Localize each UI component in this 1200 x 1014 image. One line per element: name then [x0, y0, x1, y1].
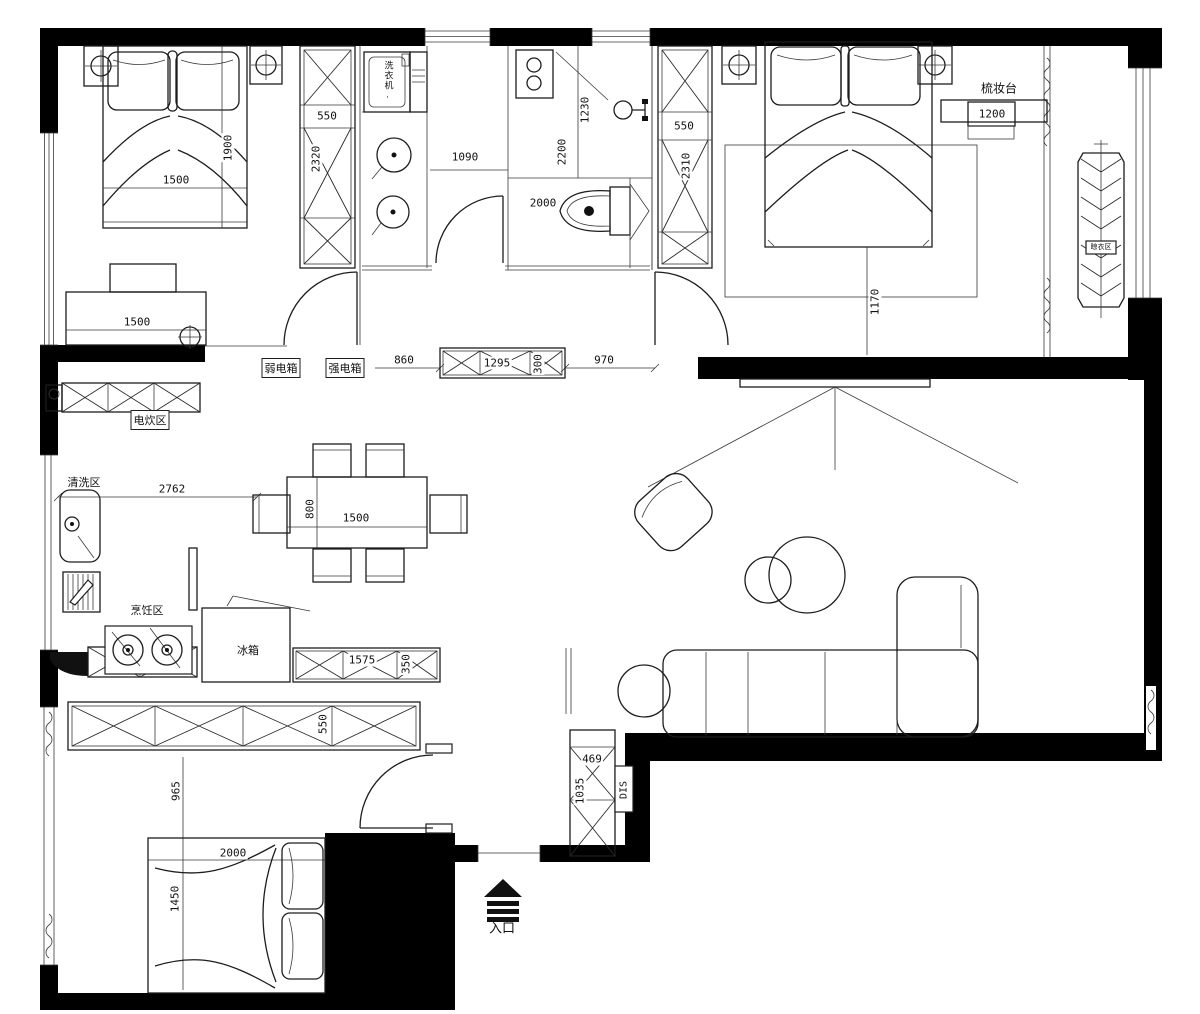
utility-basin: [372, 138, 411, 235]
dim-bl-clearance: 965: [170, 780, 183, 802]
gas-stove: [105, 626, 192, 674]
rug: [725, 145, 977, 297]
entrance-arrow-icon: [484, 879, 522, 922]
ceiling-light-icon: [250, 46, 282, 84]
label-strong-current-box: 强电箱: [326, 358, 365, 378]
dim-dresser-width: 1200: [978, 108, 1007, 121]
dim-table-width: 1500: [342, 512, 371, 525]
walls: [40, 28, 1162, 1010]
floor-plan-drawing: [0, 0, 1200, 1014]
dim-hall-b: 970: [593, 354, 615, 367]
washbasin: [516, 50, 608, 100]
label-dresser: 梳妆台: [981, 80, 1017, 97]
bedroom-master: [66, 46, 360, 349]
label-washing-machine: 洗衣机.: [383, 61, 392, 102]
bathroom: [508, 46, 652, 270]
ceiling-light-icon: [918, 46, 952, 84]
tv-cabinet: [740, 379, 930, 387]
living-room: [566, 379, 1018, 737]
windows: [40, 28, 1162, 965]
dim-wardrobe-bl-depth: 550: [317, 713, 330, 735]
dim-table-depth: 800: [304, 498, 317, 520]
dim-bed-bl-length: 2000: [219, 847, 248, 860]
dim-desk-width: 1500: [123, 316, 152, 329]
label-washing-area: 清洗区: [68, 474, 101, 490]
ceiling-light-icon: [722, 46, 756, 84]
sofa: [663, 577, 978, 737]
dim-wardrobe-tr-width: 550: [673, 120, 695, 133]
wardrobe: [68, 702, 420, 750]
label-dis: DIS: [619, 780, 630, 800]
entry: [484, 730, 633, 922]
label-electric-cooking-area: 电炊区: [131, 410, 170, 430]
dim-wardrobe-tl-height: 2320: [310, 145, 323, 174]
hallway: [375, 348, 659, 378]
dim-bed-bl-width: 1450: [169, 885, 182, 914]
fridge: [202, 596, 310, 682]
floor-plan-canvas: 1500 1900 550 2320 1090 1230 2200 2000 5…: [0, 0, 1200, 1014]
laundry-room: [362, 46, 650, 270]
dim-bath-length: 2200: [556, 138, 569, 167]
kitchen: [46, 383, 440, 682]
cutting-board: [63, 572, 100, 612]
divider-panel: [189, 548, 197, 610]
doors: [284, 196, 728, 862]
toilet: [560, 187, 630, 235]
balcony: [1078, 140, 1124, 318]
shower-floor: [630, 178, 649, 268]
dim-kitchen-width: 2762: [158, 483, 187, 496]
ceiling-light-icon: [84, 46, 118, 86]
upper-cabinet: [46, 383, 200, 412]
desk: [66, 264, 206, 349]
dim-hall-a: 860: [393, 354, 415, 367]
knife-icon: [70, 580, 93, 605]
wardrobe: [300, 46, 355, 268]
double-bed: [765, 42, 932, 247]
dim-counter-width: 1575: [348, 654, 377, 667]
label-fridge: 冰箱: [237, 642, 259, 658]
label-weak-current-box: 弱电箱: [262, 358, 301, 378]
single-bed: [148, 838, 325, 993]
sink: [60, 490, 100, 562]
tv-projection-lines: [648, 387, 1018, 487]
dim-bed-tr-offset: 1170: [869, 288, 882, 317]
shelf: [410, 52, 427, 112]
dim-wardrobe-tr-height: 2310: [680, 152, 693, 181]
side-table: [618, 665, 670, 717]
dim-bed-tl-length: 1900: [222, 134, 235, 163]
dim-shoe-cabinet-height: 1035: [574, 777, 587, 806]
label-entrance: 入口: [489, 918, 515, 937]
dim-laundry-width: 1090: [451, 151, 480, 164]
dim-wardrobe-tl-width: 550: [316, 110, 338, 123]
coffee-table: [745, 537, 845, 613]
drying-rack: [1078, 140, 1124, 318]
dim-toilet-zone: 2000: [529, 197, 558, 210]
dim-shower-width: 1230: [579, 96, 592, 125]
dim-hall-cabinet-depth: 300: [532, 353, 545, 375]
dim-bed-tl-width: 1500: [162, 174, 191, 187]
label-drying-area: 晾衣区: [1091, 242, 1112, 252]
shower-head-icon: [614, 99, 648, 121]
dim-counter-depth: 350: [400, 653, 413, 675]
dim-shoe-cabinet-width: 469: [581, 753, 603, 766]
label-cooking-area: 烹饪区: [131, 602, 164, 618]
dim-hall-cabinet-width: 1295: [483, 357, 512, 370]
armchair: [628, 467, 719, 557]
